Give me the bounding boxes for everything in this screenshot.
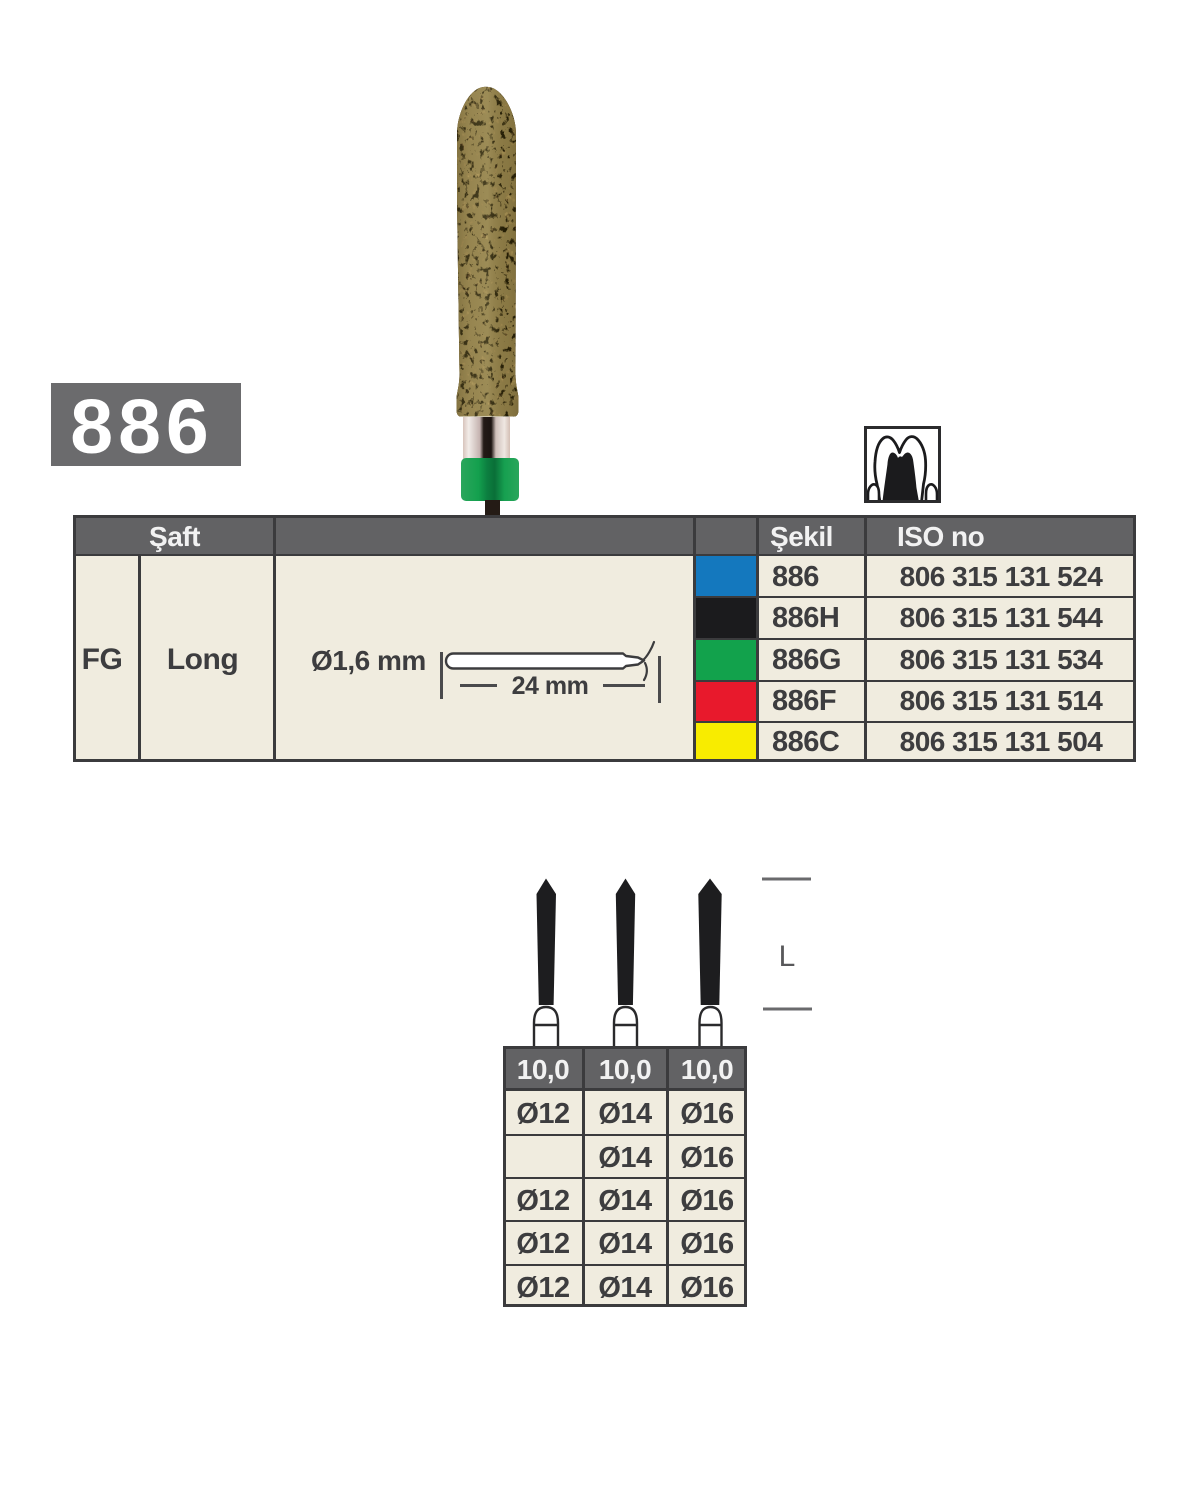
svg-text:24 mm: 24 mm <box>512 672 589 700</box>
svg-text:L: L <box>779 940 796 973</box>
